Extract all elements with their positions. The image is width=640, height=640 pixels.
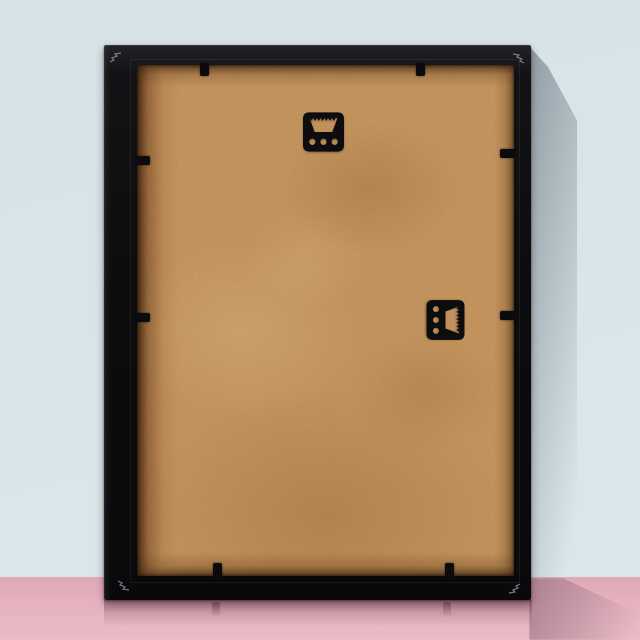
vnail-mark-top-left [108,51,124,65]
flexi-tab-right-lower [500,311,515,320]
sawtooth-hanger-side [427,300,465,341]
flexi-tab-bottom-right [445,563,454,581]
flexi-tab-right-upper [500,149,515,158]
picture-frame-back [104,45,531,600]
tab-reflection [443,602,451,618]
sawtooth-hanger-top [303,112,344,152]
flexi-tab-top-right [416,63,425,76]
wall-cast-shadow [529,46,577,578]
scene [0,0,640,640]
tab-reflection [212,602,220,618]
flexi-tab-bottom-left [213,563,222,581]
vnail-mark-bottom-left [116,578,132,592]
vnail-mark-top-right [510,52,526,66]
vnail-mark-bottom-right [506,581,522,595]
frame-floor-reflection [104,600,532,630]
flexi-tab-left-lower [135,313,150,322]
flexi-tab-top-left [200,63,209,76]
flexi-tab-left-upper [135,156,150,165]
